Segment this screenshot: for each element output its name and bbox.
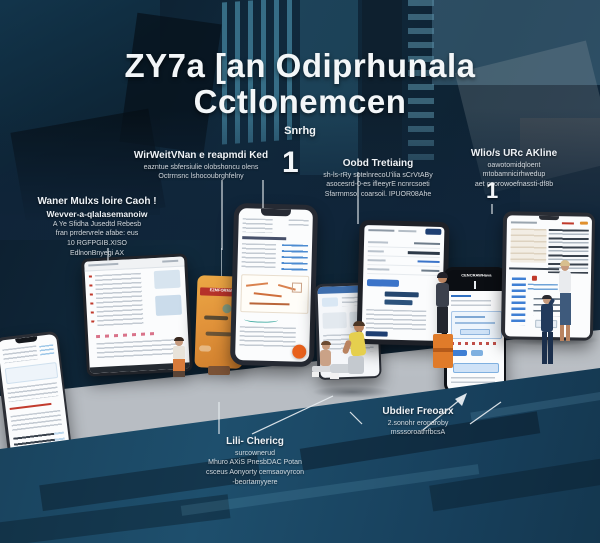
callout-keyed-line: Octrrnsnc lshocoubrghfelny [116,172,286,182]
screen-skeleton [7,382,58,402]
red-accent-line [561,222,573,224]
callout-left-subtitle: Wevver-a-qlalasemanoiw [14,209,180,220]
navy-chip [425,229,441,235]
sketch-stroke [254,292,282,297]
callout-right: Wlio/s URc AKline oawotomidqloent mtobam… [434,148,594,190]
device-stand [208,366,230,375]
slab-slat [0,494,230,543]
toolbar-line [510,221,536,223]
person-woman-right [556,262,574,344]
header-skeleton [289,219,309,228]
outlined-panel [451,311,502,339]
teal-squiggle [244,316,278,323]
callout-bottom-right-line: msssoroatrrfbcsA [350,428,486,438]
paint-smudge [222,304,231,313]
callout-keyed-title: WirWeitVNan e reapmdi Ked [116,150,286,163]
callout-bottom-right-line: 2.sonohr eronaroby [350,419,486,429]
sketch-area [510,228,547,263]
list-skeleton [96,339,177,359]
callout-bottom-center-line: -beortamyyere [178,478,332,488]
callout-left-line: 10 RGFPGIB.XISO [14,239,180,249]
image-placeholder [155,295,182,316]
screen-skeleton [2,345,37,363]
callout-bottom-right-title: Ubdier Freoarx [350,406,486,419]
alert-text-line [9,402,51,409]
divider [509,267,559,270]
callout-left-line: fran prrdervrele afabe: eus [14,229,180,239]
list-skeleton [95,273,144,327]
screen-skeleton [39,344,54,356]
callout-left: Waner Mulxs loire Caoh ! Wevver-a-qlalas… [14,196,180,259]
callout-left-title: Waner Mulxs loire Caoh ! [14,196,180,209]
callout-bottom-center-line: surcownerud [178,449,332,459]
cursor-mark [474,281,476,289]
body-skeleton [241,243,276,270]
callout-keyed-line: eazntue sbfersiulie olobshoncu olens [116,163,286,173]
title-line-1: ZY7a [an Odiprhunala [90,48,510,84]
phone-notch [15,336,37,344]
title-line-2: Cctlonemcen [90,84,510,120]
blue-chip [471,350,483,356]
body-skeleton [451,300,491,308]
blue-caption-lines [527,283,557,292]
fab-button [292,345,306,359]
page-title: ZY7a [an Odiprhunala Cctlonemcen Snrhg [90,48,510,137]
wide-button [453,363,499,373]
callout-left-line: A Ye Sfidha Jusedtd Rebesb [14,220,180,230]
primary-button [367,279,399,287]
toolbar-line [398,230,416,232]
callout-oobd-line: Sfarrnmso, coarsoil. IPUOR08Ahe [296,190,460,200]
chip [321,297,337,307]
info-banner [4,362,58,384]
phone-center-screen [235,208,313,362]
callout-right-title: Wlio/s URc AKline [434,148,594,161]
device-slot [206,332,232,337]
phone-center [230,203,318,367]
link-list [281,244,308,271]
sketch-stroke [249,302,289,305]
cable [221,248,222,278]
navy-chip [385,292,419,298]
paint-smudge [199,345,211,351]
callout-bottom-center-line: csceus Aonyorty cemsaovyrcon [178,468,332,478]
sketch-panel [240,274,309,314]
sketch-stroke [246,282,268,286]
orange-tick [579,222,587,225]
callout-bottom-center: Lili- Chericg surcownerud Mhuro AXiS Pne… [178,436,332,488]
accent-ticks [96,332,156,338]
tablet-notch [539,215,559,219]
infographic-canvas: ZY7a [an Odiprhunala Cctlonemcen Snrhg W… [0,0,600,543]
callout-right-line: oawotomidqloent [434,161,594,171]
callout-keyed: WirWeitVNan e reapmdi Ked eazntue sbfers… [116,150,286,182]
red-logo-dot [531,275,536,280]
list-bullets [89,275,95,327]
callout-right-line: mtobamnicirhwedup [434,170,594,180]
navy-chip [384,300,412,306]
marker-number-2: 1 [486,178,498,204]
person-navy-standing [538,296,556,372]
callout-left-line: EdlnonBnyegi AX [14,249,180,259]
section-title-line [242,236,286,240]
accent-ticks [451,342,497,345]
callout-bottom-right: Ubdier Freoarx 2.sonohr eronaroby msssor… [350,406,486,438]
slab-slat [429,455,600,512]
device-slot [204,315,228,320]
screen-skeleton [10,409,62,431]
device-label-text: EZMFORMA [210,288,229,293]
title-subtitle: Snrhg [90,125,510,137]
phone-header-text: CENCRAWHava [461,273,490,278]
callout-bottom-center-line: Mhuro AXiS PnesbDAC Potan [178,458,332,468]
person-child-left [168,338,190,380]
callout-right-line: aet cnorowoefnassti-df8b [434,180,594,190]
sketch-box [292,282,302,292]
header-skeleton [242,218,272,233]
phone-notch [261,209,291,217]
person-sitting-woman [330,322,376,396]
body-skeleton [239,326,296,347]
toolbar-line [368,229,394,232]
image-placeholder [154,270,181,289]
callout-bottom-center-title: Lili- Chericg [178,436,332,449]
mini-bar-stack [511,277,526,325]
form-row [367,266,439,276]
person-orange-box [430,274,456,376]
